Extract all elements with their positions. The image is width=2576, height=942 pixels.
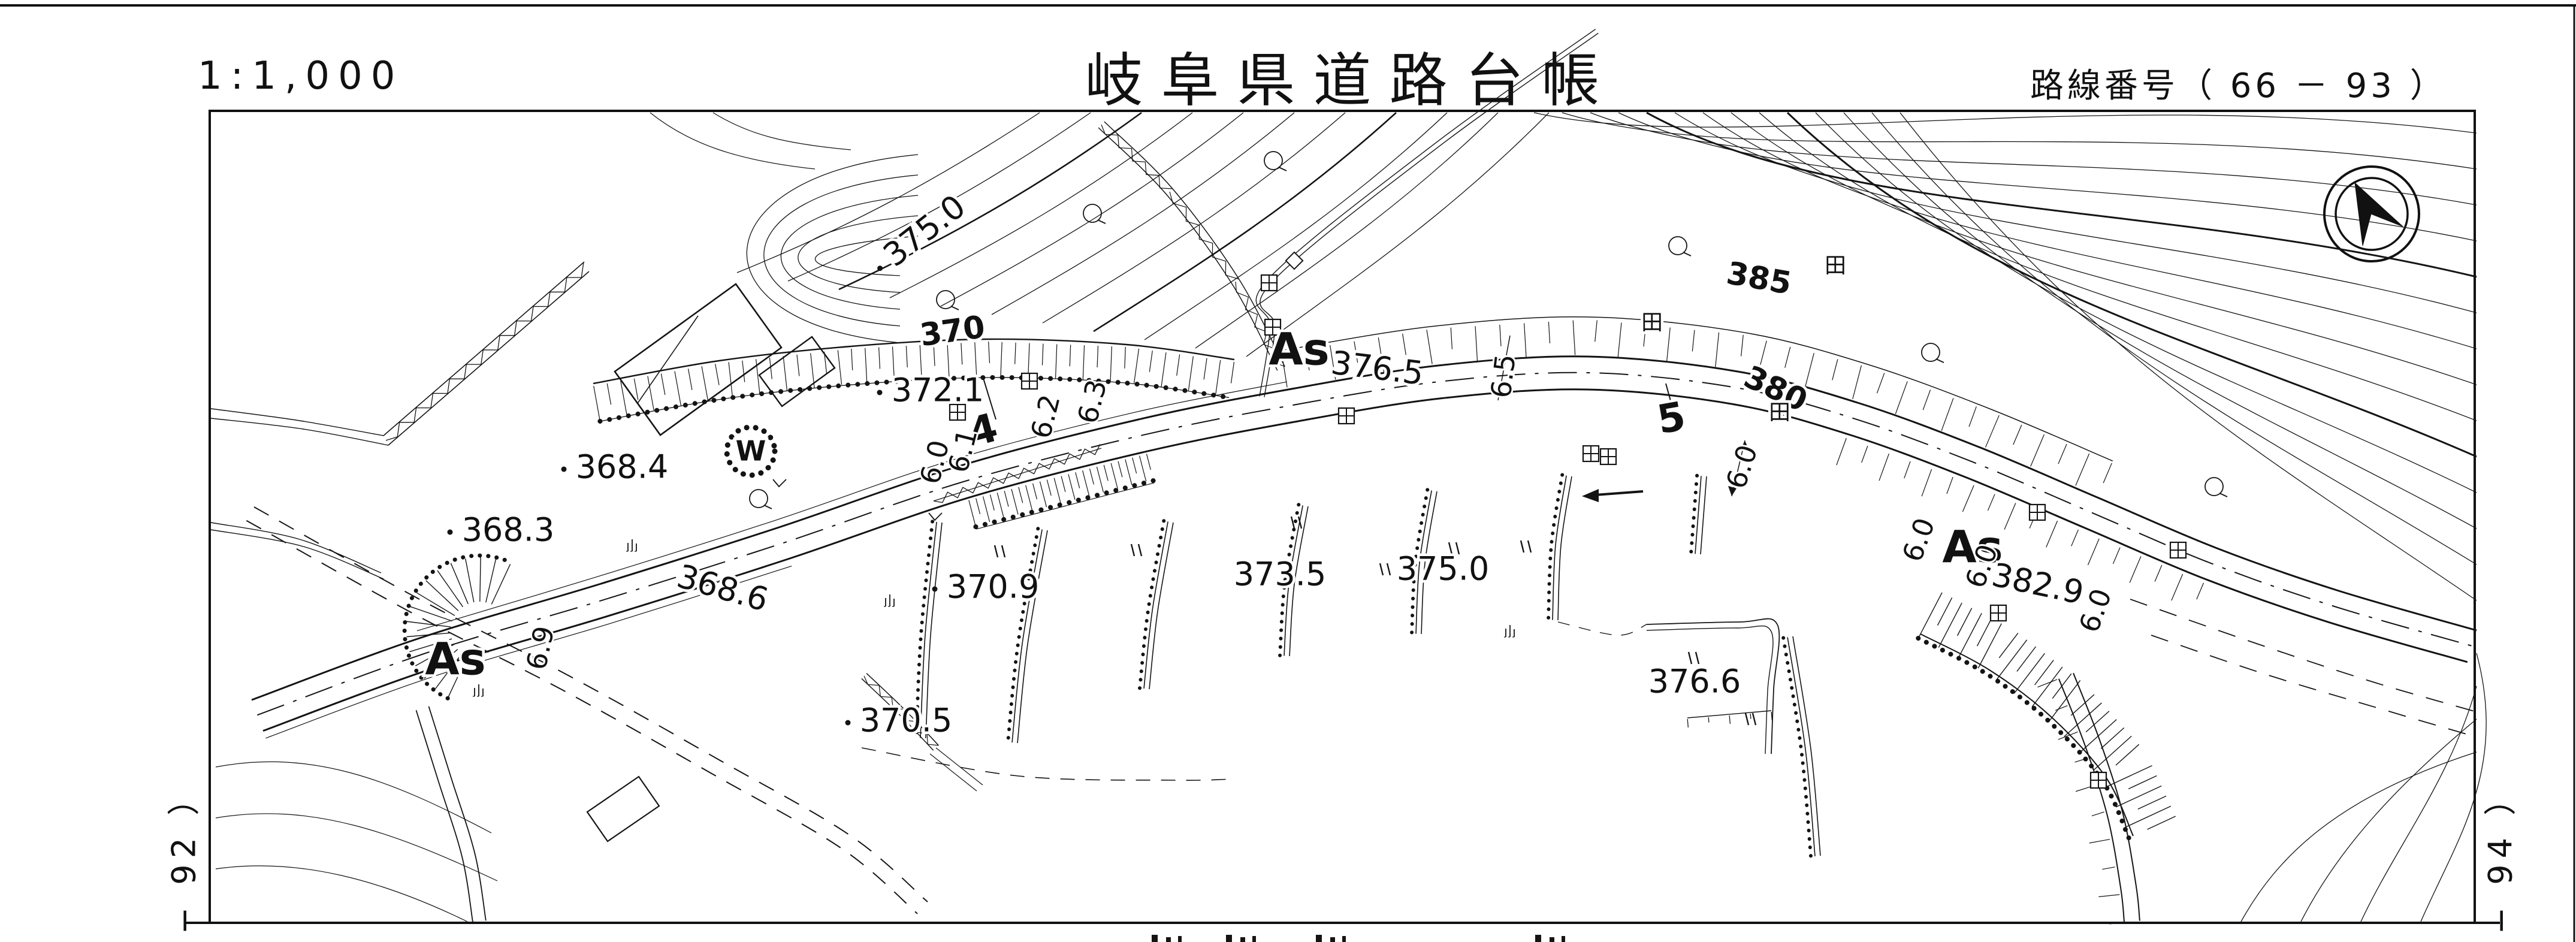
page-title: 岐阜県道路台帳 <box>1085 33 1618 117</box>
map-label: 373.5 <box>1234 555 1327 593</box>
map-label: 370.5 <box>860 702 953 739</box>
map-label: As <box>1269 324 1329 376</box>
road-ledger-sheet: { "header": { "scale": "1:1,000", "title… <box>0 0 2576 942</box>
map-label: 田 <box>1825 253 1846 278</box>
map-label: 368.6 <box>673 557 772 619</box>
map-labels: AsAsAs456.96.06.16.26.36.56.06.06.06.037… <box>425 188 2118 739</box>
map-label: 368.4 <box>576 448 669 486</box>
map-linework <box>211 29 2486 924</box>
map-label: 375.0 <box>1397 550 1490 588</box>
map-label: 6.0 <box>1720 441 1764 493</box>
map-label: 6.9 <box>520 623 561 673</box>
adjacent-sheet-left: − 92 ） <box>158 777 205 934</box>
map-label: 376.5 <box>1329 343 1426 392</box>
map-label: 368.3 <box>462 511 555 549</box>
map-label: 6.2 <box>1025 391 1067 442</box>
map-label: 370.9 <box>947 568 1040 606</box>
adjacent-sheet-right: − 94 ） <box>2474 777 2521 934</box>
clipped-text-fragments <box>1152 935 1565 942</box>
map-label: 6.5 <box>1484 352 1522 400</box>
map-label: 382.9 <box>1989 555 2087 612</box>
map-label: 372.1 <box>892 372 985 409</box>
map-label: 385 <box>1724 255 1794 302</box>
map-canvas: AsAsAs456.96.06.16.26.36.56.06.06.06.037… <box>0 0 2576 942</box>
map-label: 376.6 <box>1648 663 1741 701</box>
map-label: As <box>425 634 485 686</box>
north-arrow-icon <box>2324 167 2419 261</box>
map-label: 370 <box>918 309 987 354</box>
map-label: 田 <box>1769 400 1790 425</box>
map-scale: 1:1,000 <box>198 54 404 98</box>
map-label: 6.1 <box>942 425 984 476</box>
route-number: 路線番号（ 66 － 93 ） <box>2030 59 2447 107</box>
page-borders <box>0 5 2576 942</box>
map-label: 6.0 <box>1896 514 1941 566</box>
map-label: 田 <box>1641 310 1663 335</box>
map-label: 375.0 <box>876 188 973 274</box>
map-label: W <box>736 435 766 467</box>
map-label: 5 <box>1654 393 1689 443</box>
